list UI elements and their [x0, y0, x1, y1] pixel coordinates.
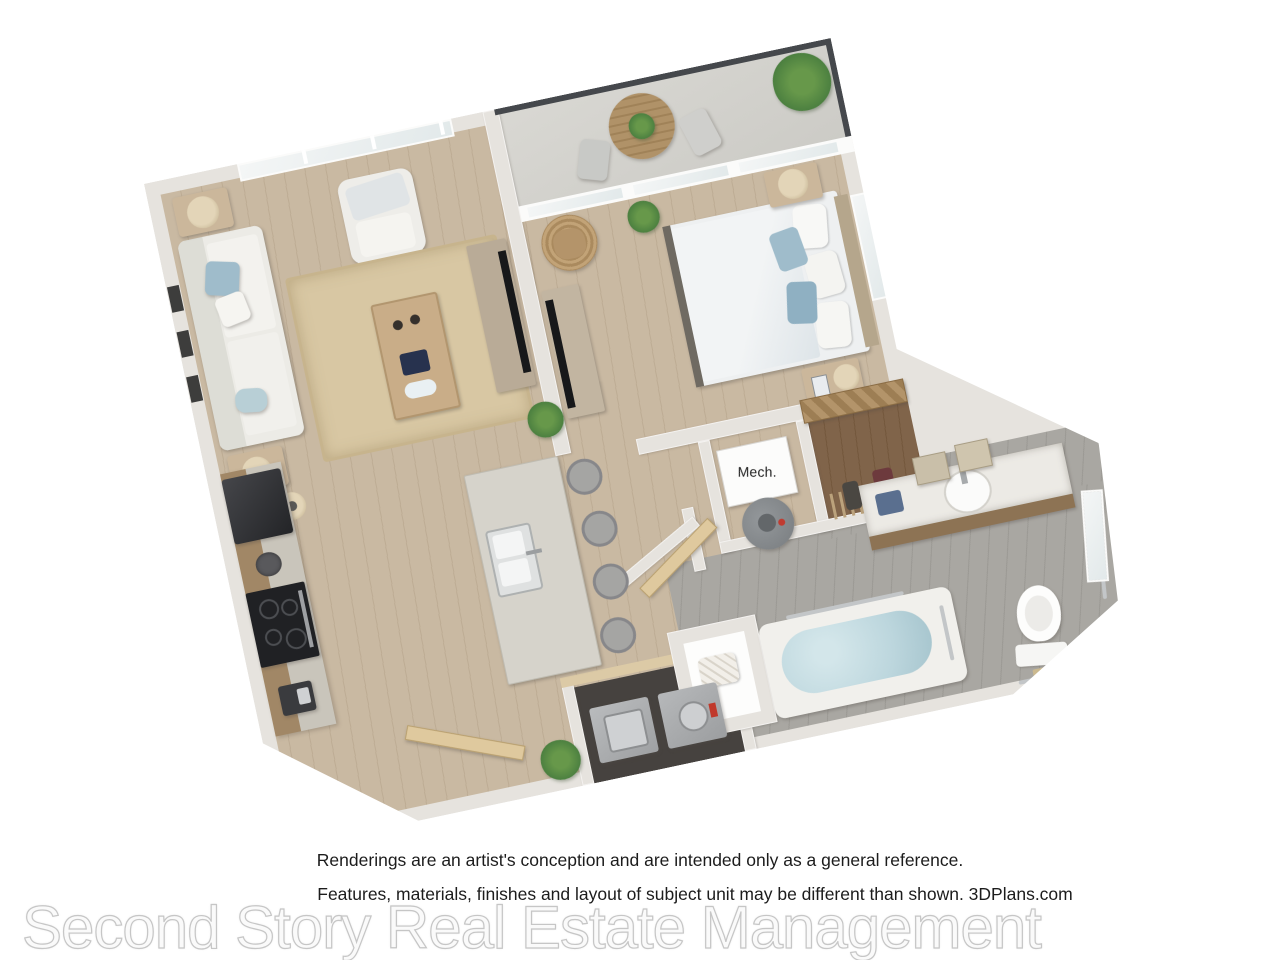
disclaimer-line1: Renderings are an artist's conception an… — [0, 850, 1280, 871]
mech-label: Mech. — [722, 444, 792, 500]
tub-water — [776, 605, 938, 699]
tub-grab-bar-side — [939, 605, 955, 661]
mech-unit-box: Mech. — [716, 436, 798, 508]
disclaimer-line2: Features, materials, finishes and layout… — [0, 884, 1280, 905]
bed-pillow-blue-2 — [786, 281, 817, 324]
decor-tray — [403, 378, 438, 400]
floor-plan: Mech. — [144, 1, 1146, 849]
bed-pillow-white-3 — [814, 300, 853, 349]
decor-mugs — [392, 319, 404, 331]
exterior-walls: Mech. — [144, 1, 1146, 849]
dryer-button — [708, 702, 718, 717]
floor-plan-page: Mech. — [0, 0, 1280, 960]
decor-box — [399, 349, 431, 376]
toilet-tank — [1015, 641, 1068, 667]
island-sink — [485, 522, 544, 598]
balcony-chair-1 — [577, 138, 611, 181]
washer-door — [603, 708, 650, 753]
toilet — [1009, 583, 1071, 673]
island-faucet — [526, 548, 542, 555]
sofa-pillow-blue-2 — [234, 387, 268, 413]
heater-valve — [778, 518, 786, 526]
dryer-dial — [676, 698, 712, 734]
